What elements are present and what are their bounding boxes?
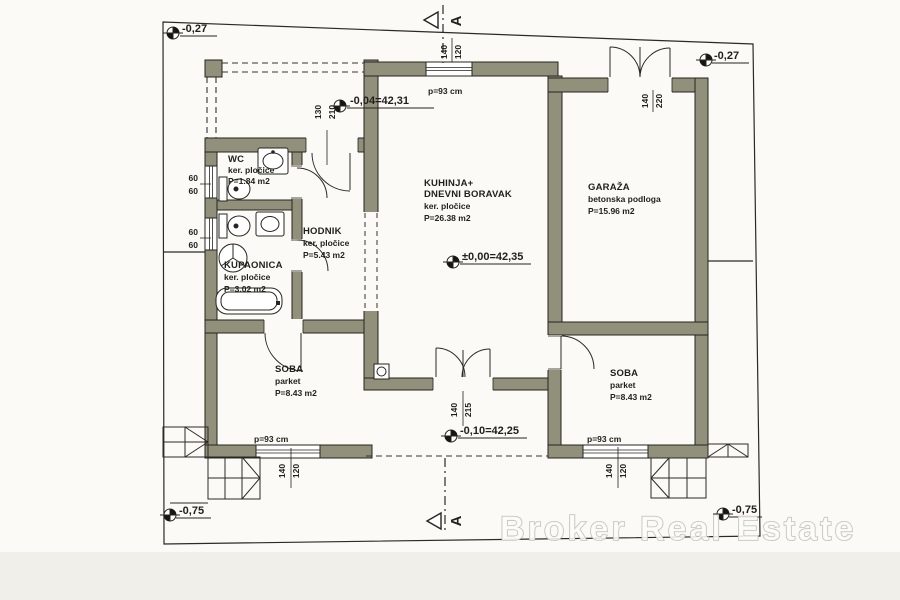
dim-soba-right-window-parapet: p=93 cm — [587, 434, 622, 444]
room-area-wc: P=1.84 m2 — [228, 176, 270, 186]
room-floor-garaza: betonska podloga — [588, 194, 661, 204]
dim-soba-left-window-parapet: p=93 cm — [254, 434, 289, 444]
dim-soba-left-window-h: 120 — [291, 464, 301, 478]
room-label-kuhinja-2: DNEVNI BORAVAK — [424, 189, 512, 200]
wall-kitchen-garage-divider — [548, 76, 562, 322]
room-floor-wc: ker. pločice — [228, 165, 275, 175]
dim-wc-window-h: 60 — [189, 186, 199, 196]
room-label-hodnik: HODNIK — [303, 226, 342, 237]
dim-main-door-w: 140 — [449, 403, 459, 417]
room-area-soba-right: P=8.43 m2 — [610, 392, 652, 402]
room-label-kuhinja: KUHINJA+ — [424, 178, 474, 189]
floor-plan-drawing: A A -0,27 -0,27 -0,04=42,31 ±0,00=42,35 … — [0, 0, 900, 600]
wc-window — [205, 166, 217, 198]
room-area-garaza: P=15.96 m2 — [588, 206, 635, 216]
room-area-soba-left: P=8.43 m2 — [275, 388, 317, 398]
soba-left-window — [256, 445, 320, 458]
dim-soba-right-window-h: 120 — [618, 464, 628, 478]
room-label-wc: WC — [228, 154, 244, 165]
kitchen-window — [426, 62, 472, 76]
floor-plan-page: A A -0,27 -0,27 -0,04=42,31 ±0,00=42,35 … — [0, 0, 900, 600]
dim-garage-door-h: 220 — [654, 94, 664, 108]
level-site-bottom-left: -0,75 — [179, 505, 204, 517]
level-site-top-right: -0,27 — [714, 50, 739, 62]
level-site-top-left: -0,27 — [182, 23, 207, 35]
dim-soba-left-window-w: 140 — [277, 464, 287, 478]
wall-garage-soba-divider — [548, 322, 708, 335]
section-letter-top: A — [448, 15, 465, 26]
room-floor-hodnik: ker. pločice — [303, 238, 350, 248]
dim-wc-window-w: 60 — [189, 173, 199, 183]
room-floor-kupaonica: ker. pločice — [224, 272, 271, 282]
dim-garage-door-w: 140 — [640, 94, 650, 108]
wall-wc-bath-divider — [217, 200, 293, 210]
room-area-kuhinja: P=26.38 m2 — [424, 213, 471, 223]
soba-right-window — [583, 445, 648, 458]
room-floor-soba-right: parket — [610, 380, 636, 390]
dim-entry-door-w: 130 — [313, 105, 323, 119]
dim-kitchen-window-w: 140 — [439, 45, 449, 59]
room-label-garaza: GARAŽA — [588, 181, 630, 193]
scan-shadow-strip — [0, 552, 900, 600]
level-entrance: -0,10=42,25 — [460, 425, 519, 437]
corner-column — [374, 364, 389, 379]
level-terrace: -0,04=42,31 — [350, 95, 409, 107]
bath-window — [205, 218, 217, 250]
bath-toilet — [219, 214, 250, 238]
wall-exterior-right — [695, 78, 708, 458]
dim-kitchen-window-parapet: p=93 cm — [428, 86, 463, 96]
dim-entry-door-h: 210 — [327, 105, 337, 119]
floor-drain — [276, 301, 280, 305]
watermark-text: Broker Real Estate — [500, 510, 856, 548]
dim-kitchen-window-h: 120 — [453, 45, 463, 59]
dim-bath-window-h: 60 — [189, 240, 199, 250]
room-floor-soba-left: parket — [275, 376, 301, 386]
terrace-pillar — [205, 60, 222, 77]
room-label-soba-right: SOBA — [610, 368, 638, 379]
level-living: ±0,00=42,35 — [462, 251, 523, 263]
bath-sink — [256, 212, 284, 236]
room-area-kupaonica: P=3.02 m2 — [224, 284, 266, 294]
room-label-kupaonica: KUPAONICA — [224, 260, 283, 271]
dim-main-door-h: 215 — [463, 403, 473, 417]
dim-bath-window-w: 60 — [189, 227, 199, 237]
room-area-hodnik: P=5.43 m2 — [303, 250, 345, 260]
section-letter-bottom: A — [448, 515, 465, 526]
room-floor-kuhinja: ker. pločice — [424, 201, 471, 211]
room-label-soba-left: SOBA — [275, 364, 303, 375]
dim-soba-right-window-w: 140 — [604, 464, 614, 478]
